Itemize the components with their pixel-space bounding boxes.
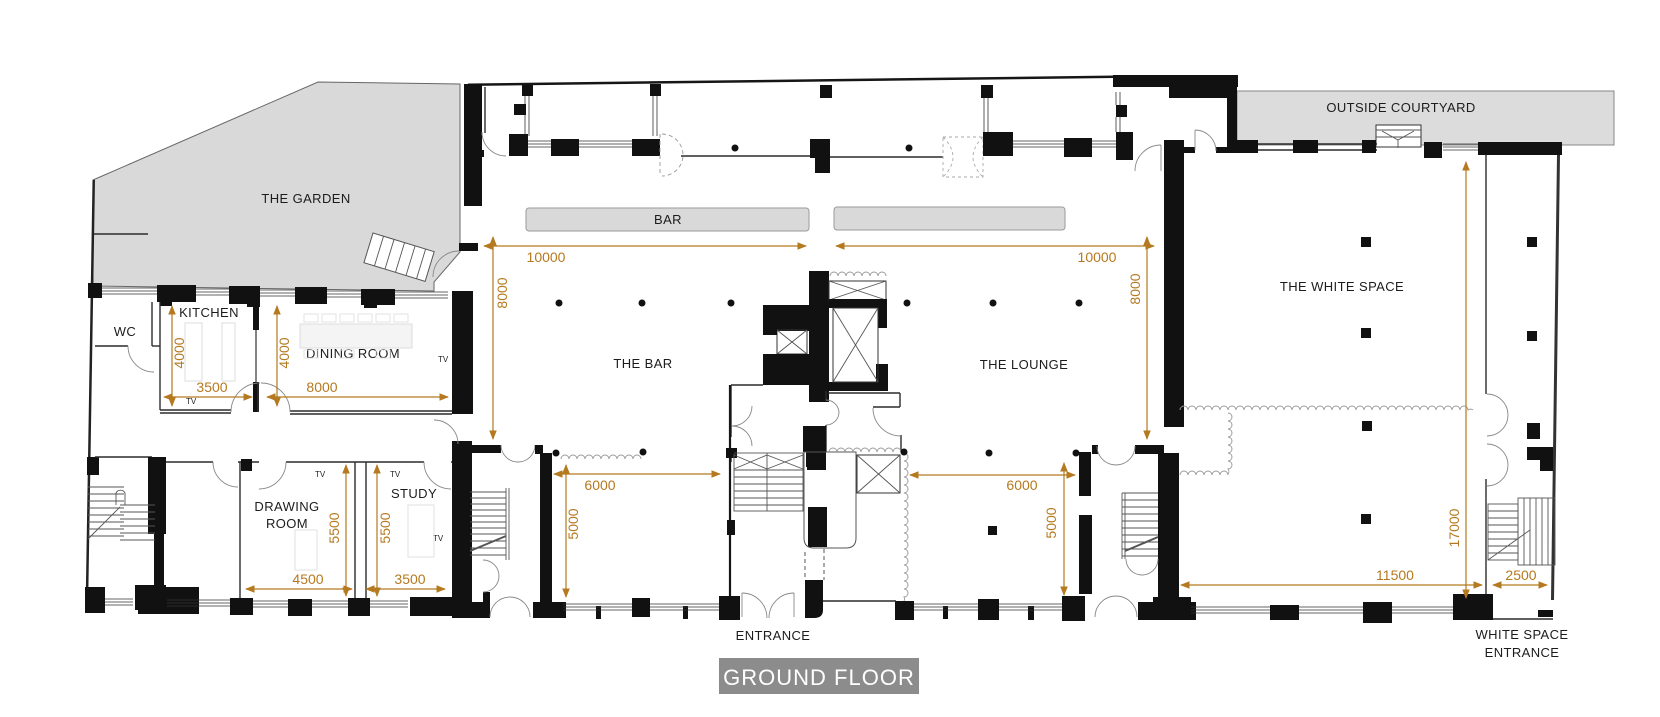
svg-text:6000: 6000 bbox=[584, 477, 615, 493]
svg-text:THE WHITE SPACE: THE WHITE SPACE bbox=[1280, 279, 1404, 294]
svg-text:5500: 5500 bbox=[326, 512, 342, 543]
svg-text:DRAWING: DRAWING bbox=[254, 499, 319, 514]
svg-text:8000: 8000 bbox=[306, 379, 337, 395]
svg-text:ENTRANCE: ENTRANCE bbox=[1485, 645, 1560, 660]
svg-text:4000: 4000 bbox=[276, 337, 292, 368]
svg-text:OUTSIDE COURTYARD: OUTSIDE COURTYARD bbox=[1326, 100, 1475, 115]
svg-text:5000: 5000 bbox=[1043, 507, 1059, 538]
svg-text:TV: TV bbox=[315, 470, 326, 479]
svg-text:TV: TV bbox=[438, 355, 449, 364]
svg-text:10000: 10000 bbox=[527, 249, 566, 265]
svg-text:WC: WC bbox=[114, 324, 136, 339]
svg-text:6000: 6000 bbox=[1006, 477, 1037, 493]
svg-text:3500: 3500 bbox=[394, 571, 425, 587]
svg-text:WHITE SPACE: WHITE SPACE bbox=[1475, 627, 1568, 642]
svg-text:4000: 4000 bbox=[171, 337, 187, 368]
svg-text:5500: 5500 bbox=[377, 512, 393, 543]
svg-text:8000: 8000 bbox=[1127, 273, 1143, 304]
svg-text:GROUND FLOOR: GROUND FLOOR bbox=[723, 665, 915, 690]
svg-text:TV: TV bbox=[186, 397, 197, 406]
svg-text:ENTRANCE: ENTRANCE bbox=[736, 628, 811, 643]
svg-text:5000: 5000 bbox=[565, 508, 581, 539]
svg-text:11500: 11500 bbox=[1376, 567, 1414, 583]
svg-text:THE BAR: THE BAR bbox=[613, 356, 672, 371]
svg-text:10000: 10000 bbox=[1078, 249, 1117, 265]
svg-text:TV: TV bbox=[433, 534, 444, 543]
svg-text:4500: 4500 bbox=[292, 571, 323, 587]
svg-text:THE GARDEN: THE GARDEN bbox=[261, 191, 350, 206]
svg-text:BAR: BAR bbox=[654, 212, 682, 227]
svg-text:2500: 2500 bbox=[1505, 567, 1536, 583]
svg-text:KITCHEN: KITCHEN bbox=[179, 305, 239, 320]
svg-text:TV: TV bbox=[390, 470, 401, 479]
svg-text:STUDY: STUDY bbox=[391, 486, 437, 501]
svg-text:17000: 17000 bbox=[1446, 508, 1462, 547]
svg-text:8000: 8000 bbox=[494, 277, 510, 308]
svg-text:THE LOUNGE: THE LOUNGE bbox=[980, 357, 1069, 372]
svg-text:3500: 3500 bbox=[196, 379, 227, 395]
svg-text:ROOM: ROOM bbox=[266, 516, 308, 531]
